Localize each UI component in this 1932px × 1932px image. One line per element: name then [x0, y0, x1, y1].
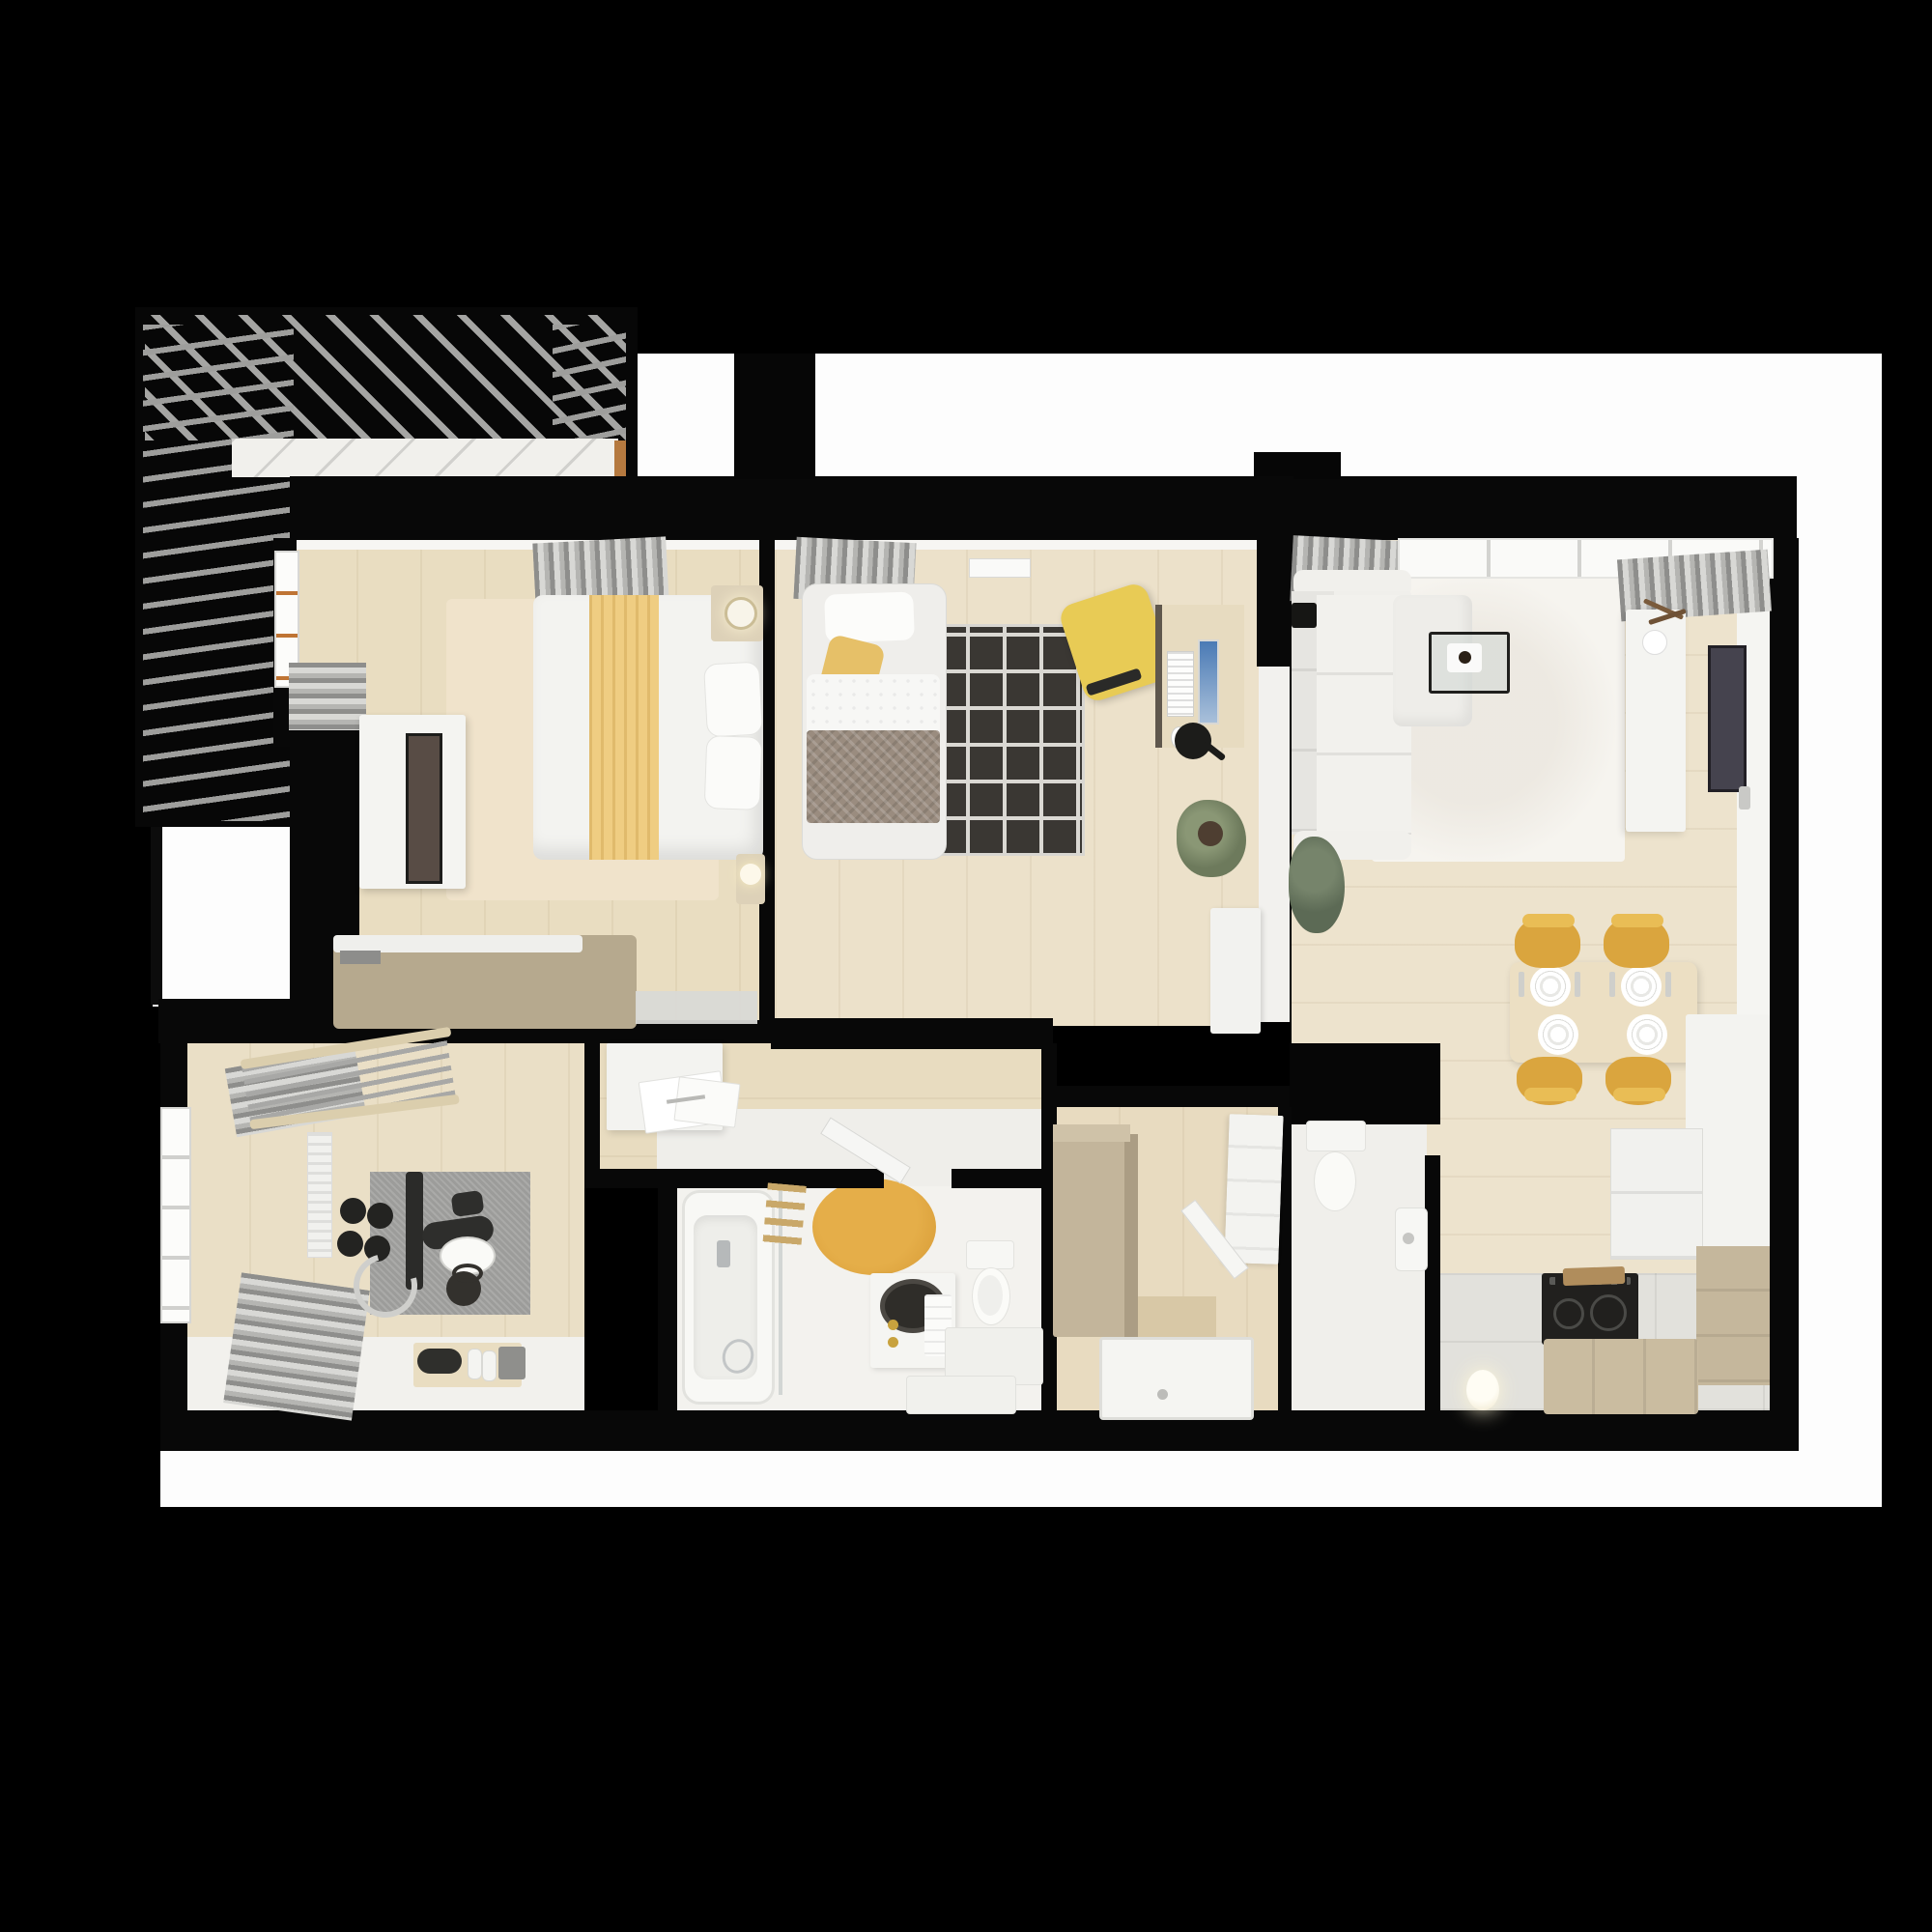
dining-chair-top-2-back: [1611, 914, 1663, 927]
master-pillow-1: [703, 662, 763, 738]
bath-mat-2: [906, 1376, 1016, 1414]
utility-wardrobe-side: [1124, 1134, 1138, 1339]
kids-monitor: [1198, 639, 1219, 724]
utility-shelf-white: [1224, 1114, 1283, 1264]
gym-roll-1: [468, 1349, 482, 1379]
wc-toilet-tank: [1306, 1121, 1366, 1151]
master-curtain-left: [289, 663, 366, 730]
sofa-side-table-black: [1292, 603, 1317, 628]
dining-plate-2: [1621, 966, 1662, 1007]
utility-wardrobe-tan: [1053, 1124, 1130, 1337]
dining-chair-bottom-1-back: [1524, 1088, 1577, 1101]
floor-plan: [0, 0, 1932, 1932]
gym-dumbbell-2a: [337, 1231, 363, 1257]
dining-cutlery-3: [1609, 972, 1615, 997]
bathroom-door-ajar: [820, 1118, 911, 1184]
gym-window: [160, 1107, 191, 1323]
dining-cutlery-1: [1519, 972, 1524, 997]
gym-dumbbell-1b: [367, 1203, 393, 1229]
dining-plate-3: [1538, 1014, 1578, 1055]
utility-drain: [1157, 1389, 1168, 1400]
kids-throw: [807, 730, 940, 823]
master-mirror: [406, 733, 442, 884]
bath-knob-1: [888, 1320, 898, 1330]
gym-dumbbell-1a: [340, 1198, 366, 1224]
kitchen-tan-front-right: [1696, 1246, 1770, 1385]
kitchen-egg-lamp: [1466, 1370, 1499, 1410]
gym-radiator: [307, 1132, 332, 1258]
living-plant: [1289, 837, 1345, 933]
cooktop-ring-1: [1553, 1298, 1584, 1329]
cooktop-ring-2: [1590, 1294, 1627, 1331]
dining-cutlery-2: [1575, 972, 1580, 997]
furniture-layer: [0, 0, 1932, 1932]
dining-cutlery-4: [1665, 972, 1671, 997]
wc-toilet-bowl: [1314, 1151, 1356, 1211]
cutting-board: [1563, 1266, 1626, 1286]
kitchen-island-tan: [1544, 1339, 1698, 1414]
gym-yoga-blocks: [498, 1347, 526, 1379]
wc-tap: [1403, 1233, 1414, 1244]
kids-cabinet: [1210, 908, 1261, 1034]
dining-plate-4: [1627, 1014, 1667, 1055]
dining-chair-top-1-back: [1522, 914, 1575, 927]
kids-keyboard: [1167, 651, 1194, 717]
master-lamp-bottom: [740, 864, 761, 885]
dining-plate-1: [1530, 966, 1571, 1007]
master-pillow-2: [704, 735, 763, 810]
master-threshold: [636, 991, 757, 1024]
utility-shower-tray: [1099, 1337, 1254, 1420]
gym-foam-roller: [417, 1349, 462, 1374]
gym-curtain-bottom: [223, 1272, 370, 1420]
dining-chair-bottom-2-back: [1613, 1088, 1665, 1101]
kids-desk-edge: [1155, 605, 1162, 748]
right-wall-handle: [1739, 786, 1750, 810]
master-bed-yellow-runner: [589, 595, 659, 860]
vase-pot: [1642, 630, 1667, 655]
kids-heater: [969, 558, 1031, 578]
hall-papers-2: [673, 1076, 740, 1127]
tv-screen: [1708, 645, 1747, 792]
bath-toilet-seat: [978, 1275, 1003, 1316]
gym-roll-2: [482, 1350, 497, 1381]
bath-faucet: [717, 1240, 730, 1267]
gym-kettlebell-handle: [452, 1264, 483, 1283]
bath-knob-2: [888, 1337, 898, 1348]
coffee-table-cup: [1459, 651, 1471, 664]
master-lamp-top: [724, 597, 757, 630]
gym-head-pad: [450, 1190, 484, 1217]
kitchen-cabinet-fronts: [1610, 1128, 1703, 1260]
bath-toilet-tank: [966, 1240, 1014, 1269]
bath-towel-ladder: [762, 1182, 807, 1249]
master-bench-gray: [340, 951, 381, 964]
kids-plant-pot: [1198, 821, 1223, 846]
utility-wardrobe-top: [1053, 1124, 1130, 1142]
